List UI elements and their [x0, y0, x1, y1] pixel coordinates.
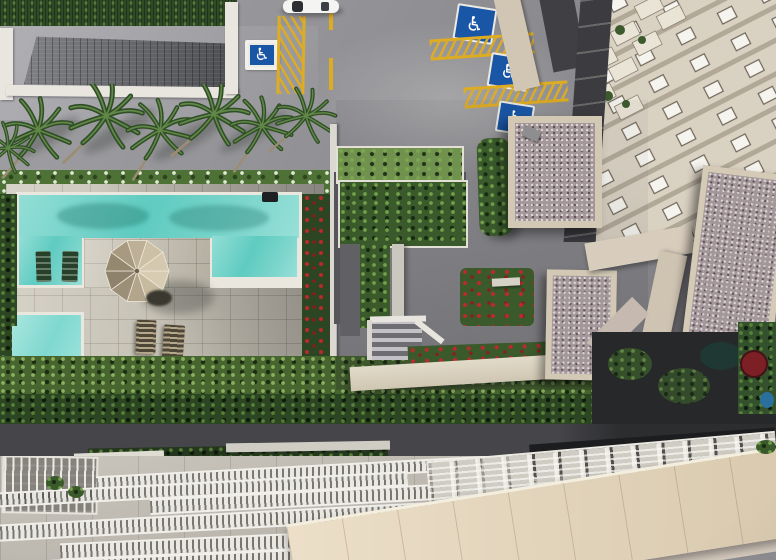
in-pool-lounger: [35, 251, 51, 283]
deck-lounger: [162, 324, 185, 359]
accessible-parking-sign: ♿: [248, 43, 276, 67]
green-roof-planter: [336, 146, 464, 184]
rooftop-ac-unit: [521, 125, 541, 142]
wheelchair-icon: ♿: [465, 13, 486, 36]
in-pool-lounger: [61, 251, 78, 283]
pool-edge-equipment: [262, 192, 278, 202]
accessible-bay-pad: ♿: [245, 40, 279, 70]
wheelchair-icon: ♿: [254, 47, 269, 64]
lush-planter-block: [338, 180, 468, 248]
white-car-top-view: [283, 0, 339, 13]
flowering-vine-fence: [302, 194, 330, 368]
rooftop-bush: [46, 476, 64, 490]
terrace-walkway: [340, 244, 360, 336]
garden-bench: [492, 277, 520, 286]
deck-lounger: [135, 320, 156, 355]
pool-water-left-arm: [19, 236, 82, 285]
patio-table-set: [146, 290, 172, 306]
car-rear-window: [321, 2, 329, 11]
pool-water-right-arm: [212, 236, 297, 277]
play-element-blue: [760, 392, 774, 408]
stair-rail-left: [367, 320, 372, 360]
plaza-wall-east: [225, 2, 238, 94]
rooftop-bush: [68, 486, 84, 498]
water-palm-shadow: [57, 203, 149, 229]
car-windshield: [292, 1, 303, 12]
pool-water-main: [19, 195, 299, 238]
play-element-red: [740, 350, 768, 378]
gravel-rooftop-a: [508, 116, 602, 228]
corner-greenery: [756, 440, 776, 454]
courtyard-plants: [658, 368, 710, 404]
palm-tree-row: [0, 84, 344, 198]
courtyard-plants-dark: [700, 342, 742, 370]
aerial-render-scene: ♿ ♿ ♿ ♿: [0, 0, 776, 560]
hedge-pool-west: [0, 194, 17, 326]
water-palm-shadow: [169, 205, 269, 231]
rose-garden-patch: [460, 268, 534, 326]
courtyard-plants: [608, 348, 652, 380]
hatch-strip-vertical: [276, 16, 305, 94]
